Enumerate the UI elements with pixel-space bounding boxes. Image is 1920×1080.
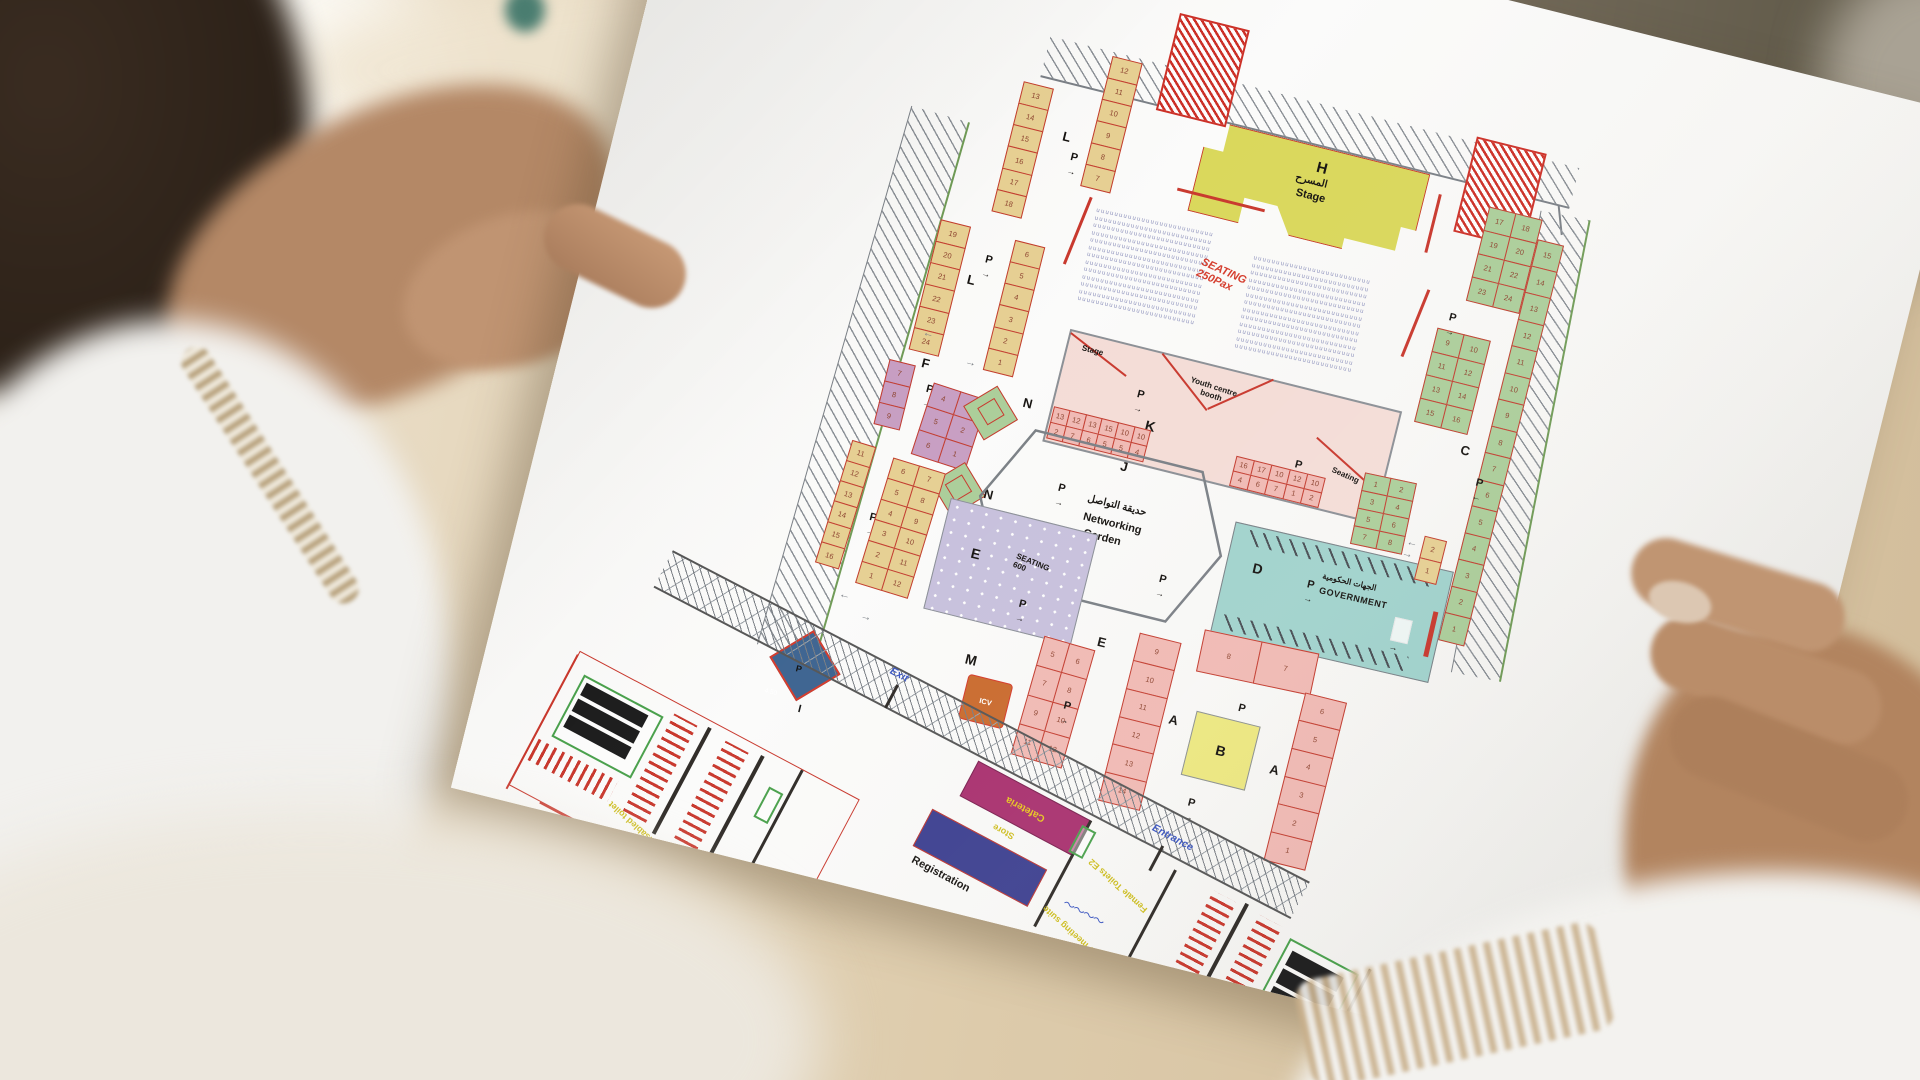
- p-symbol: P →: [1277, 569, 1316, 610]
- door-frame: [753, 787, 783, 825]
- zone-d-label: GOVERNMENT: [1318, 585, 1388, 610]
- store-label-1: Store: [991, 822, 1016, 842]
- foreground-sleeve-blur: [0, 810, 820, 1080]
- toilet-fixtures: [1217, 915, 1282, 1007]
- zone-b-booth: B: [1181, 711, 1261, 791]
- seat-block-1: uuuuuuuuuuuuuuuuuuuuuuuuuu uuuuuuuuuuuuu…: [1077, 207, 1215, 327]
- photo-scene: H المسرح Stage 131415161718 121110987 19…: [0, 0, 1920, 1080]
- n-inner-diamond: [945, 474, 972, 501]
- booth-cell: 16: [1440, 403, 1473, 434]
- zone-n-letter-1: N: [1021, 395, 1034, 412]
- m-booth-label: ICV: [978, 696, 992, 708]
- booth-strip-a-right: 654321: [1264, 692, 1346, 869]
- seat-block-2: uuuuuuuuuuuuuuuuuuuuuuuuuu uuuuuuuuuuuuu…: [1234, 254, 1372, 374]
- direction-arrow-icon: ←: [1405, 536, 1419, 550]
- toilet-fixtures: [674, 741, 749, 850]
- d-red-bar: [1423, 611, 1438, 657]
- zone-f-letter: F: [920, 355, 931, 371]
- zone-l-letter-top: L: [1061, 128, 1072, 144]
- red-divider: [1424, 194, 1441, 253]
- zone-a-letter-left: A: [1167, 711, 1180, 728]
- d-white-booth: [1390, 617, 1413, 644]
- zone-m-letter: M: [964, 650, 979, 668]
- direction-arrow-icon: ←: [838, 588, 852, 602]
- zone-b-letter: B: [1214, 742, 1228, 760]
- booth-strip-l-outer-upper: 131415161718: [991, 81, 1053, 218]
- booth-grid-right-2: 910111213141516: [1414, 328, 1490, 434]
- red-divider: [1401, 289, 1431, 357]
- female-toilets-label: Female Toilets E2: [1085, 855, 1151, 916]
- zone-d-letter: D: [1251, 560, 1264, 578]
- zone-c-letter: C: [1459, 442, 1472, 459]
- zone-a-letter-right: A: [1268, 761, 1281, 778]
- p-symbol-arrow: →: [1066, 165, 1076, 177]
- seating-capacity-label: SEATING 250Pax: [1195, 256, 1249, 297]
- zone-e-booths-letter: E: [1096, 634, 1108, 651]
- direction-arrow-icon: →: [859, 610, 873, 624]
- cafeteria-label: Cafeteria: [1004, 793, 1047, 823]
- direction-arrow-icon: →: [964, 356, 978, 370]
- p-symbol: P →: [1046, 143, 1080, 183]
- p-symbol-letter: P: [1069, 151, 1079, 164]
